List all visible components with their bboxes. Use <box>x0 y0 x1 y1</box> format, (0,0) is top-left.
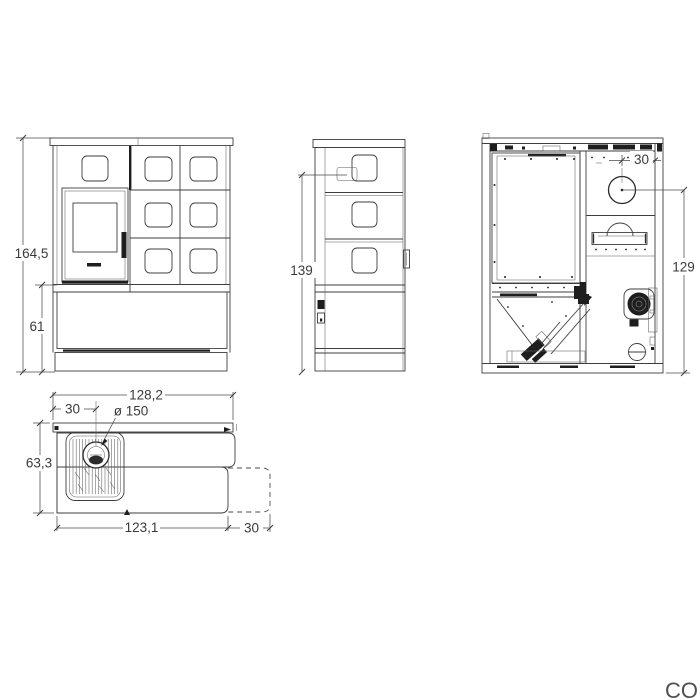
dim-front-total-height: 164,5 <box>14 135 55 375</box>
tile-side-3 <box>352 248 377 273</box>
tile-side-2 <box>352 202 377 227</box>
dim-front-base-height: 61 <box>26 282 57 375</box>
dim-side-flue-height: 139 <box>287 172 347 375</box>
tile-front-r2c2 <box>190 203 217 227</box>
tile-front-r3c2 <box>190 249 217 273</box>
dim-label-164-5: 164,5 <box>15 246 49 261</box>
rear-view: 30 <box>482 134 700 377</box>
side-top-plate <box>313 140 405 148</box>
front-top-plate <box>50 138 233 146</box>
dim-label-129: 129 <box>672 260 695 275</box>
dim-top-extension: 30 <box>228 514 273 536</box>
flue-stub-outline <box>337 168 357 181</box>
technical-drawing-page: 164,5 61 <box>0 0 700 700</box>
side-door-handle <box>404 250 410 268</box>
dim-rear-flue-center-height: 129 <box>666 187 700 376</box>
room-fan-grille <box>624 288 657 361</box>
dim-top-depth: 63,3 <box>24 420 54 516</box>
fire-door <box>62 188 128 284</box>
door-glass <box>73 203 117 252</box>
pellet-hopper-auger <box>492 284 592 367</box>
side-view: 139 <box>287 140 410 376</box>
dim-label-123-1: 123,1 <box>125 520 159 535</box>
tile-side-1 <box>352 155 377 181</box>
top-view: 128,2 30 ø 150 63,3 <box>24 387 273 536</box>
tile-front-left-top <box>82 156 108 181</box>
dim-label-63-3: 63,3 <box>26 456 52 471</box>
power-switch <box>318 300 325 309</box>
dim-label-61: 61 <box>29 319 44 334</box>
drawing-canvas: 164,5 61 <box>0 0 700 700</box>
dim-label-bottom-30: 30 <box>244 521 259 536</box>
door-hinge <box>122 232 127 258</box>
dim-rear-flue-offset: 30 <box>609 151 661 167</box>
auger-motor <box>519 331 555 366</box>
tile-front-r3c1 <box>145 249 172 273</box>
base-drawer <box>57 292 227 349</box>
door-handle <box>87 263 101 267</box>
rating-label <box>630 320 639 327</box>
watermark-text: CO <box>665 678 698 700</box>
front-view: 164,5 61 <box>14 135 233 375</box>
door-sill <box>62 281 128 284</box>
dim-label-128-2: 128,2 <box>129 388 163 403</box>
dim-label-rear-30: 30 <box>634 152 649 167</box>
dim-label-top-30: 30 <box>65 402 80 417</box>
tile-front-r2c1 <box>145 203 172 227</box>
top-plate-edge <box>53 423 233 432</box>
tile-front-r1c2 <box>190 157 217 181</box>
plinth <box>55 353 227 372</box>
dim-label-139: 139 <box>290 263 313 278</box>
tile-front-r1c1 <box>145 157 172 181</box>
hopper-back-panel <box>492 153 580 283</box>
side-extension-dashed <box>228 468 270 512</box>
dim-top-flue-from-left: 30 <box>50 402 99 417</box>
dim-flue-diameter: ø 150 <box>101 403 152 446</box>
dim-top-body-width: 123,1 <box>54 516 231 535</box>
dim-label-diameter: ø 150 <box>114 404 149 419</box>
fan-housing <box>586 223 655 256</box>
center-marker <box>124 509 130 515</box>
cooktop-grille <box>66 433 124 501</box>
